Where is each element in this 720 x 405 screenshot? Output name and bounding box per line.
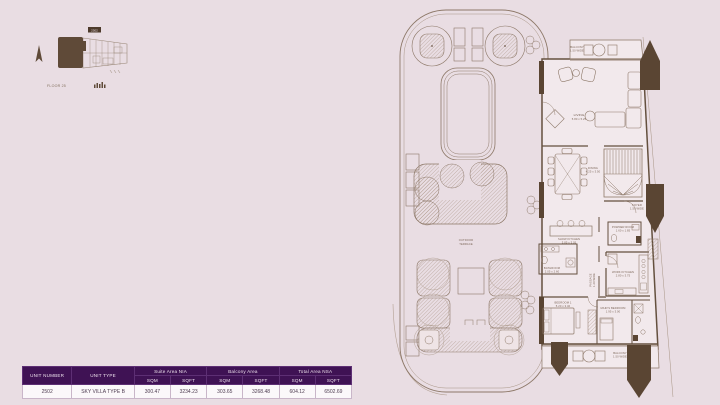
passage-label-group: PASSAGE 1.20 WIDE [589, 273, 597, 287]
room-dims-foyer: 1.50 WIDE [630, 206, 644, 210]
room-dims-powder: 1.60 x 1.85 [616, 228, 631, 232]
header-total-sqm: SQM [279, 376, 315, 385]
terrace: OUTDOOR TERRACE [393, 10, 548, 395]
room-dims-show-kitchen: 3.85 x 3.05 [562, 240, 577, 244]
room-label-powder: POWDER ROOM [612, 225, 635, 229]
header-group-total: Total Area NSA [279, 367, 351, 376]
loungers-top [454, 28, 483, 61]
room-label-dining: DINING [588, 166, 598, 170]
cell-suite-sqft: 3234.23 [171, 385, 207, 398]
key-plan: 2502 FLOOR 25 [30, 14, 142, 96]
terrace-label-1: OUTDOOR [459, 238, 473, 242]
cell-suite-sqm: 300.47 [134, 385, 170, 398]
cell-balcony-sqm: 303.65 [207, 385, 243, 398]
room-dims-balcony-bottom: 1.50 WIDE [613, 354, 627, 358]
column-top-right [640, 40, 660, 90]
floor-label: FLOOR 25 [47, 84, 66, 88]
header-suite-sqft: SQFT [171, 376, 207, 385]
area-table-body: 2502 SKY VILLA TYPE B 300.47 3234.23 303… [23, 385, 352, 398]
cell-balcony-sqft: 3268.48 [243, 385, 279, 398]
key-plan-building-outline [83, 38, 127, 73]
shaft [648, 239, 658, 259]
spa-left [412, 26, 452, 66]
unit-number-chip-label: 2502 [91, 28, 98, 32]
room-label-bathroom: BATHROOM [544, 266, 561, 270]
floor-plan: OUTDOOR TERRACE [392, 4, 684, 400]
room-dims-living: 5.80 x 5.25 [572, 117, 587, 121]
vanity [633, 335, 638, 341]
header-suite-sqm: SQM [134, 376, 170, 385]
room-dims-maids: 1.95 x 3.00 [606, 309, 621, 313]
room-label-foyer: FOYER [632, 203, 642, 207]
pool [441, 68, 495, 160]
header-balcony-sqft: SQFT [243, 376, 279, 385]
room-label-work-kitchen: WORK KITCHEN [612, 270, 634, 274]
column-bottom-left [551, 342, 568, 376]
header-balcony-sqm: SQM [207, 376, 243, 385]
room-label-balcony-bottom: BALCONY [613, 351, 627, 355]
header-total-sqft: SQFT [315, 376, 351, 385]
balcony-top: BALCONY 1.50 WIDE [570, 40, 643, 60]
column-bottom-right [627, 345, 651, 398]
seating-bottom [414, 258, 524, 355]
header-unit-type: UNIT TYPE [72, 367, 135, 385]
room-label-passage: PASSAGE [589, 273, 593, 286]
terrace-label-2: TERRACE [459, 242, 473, 246]
header-group-suite: Suite Area NIA [134, 367, 206, 376]
room-dims-work-kitchen: 2.80 x 3.75 [616, 273, 631, 277]
key-plan-unit-notch [82, 41, 86, 51]
spa-right [485, 26, 525, 66]
room-dims-bathroom: 2.05 x 2.60 [545, 269, 560, 273]
wardrobe [588, 310, 596, 334]
interior-unit: BALCONY 1.50 WIDE LIVING 5.80 x 5.25 [539, 37, 673, 398]
room-label-balcony-top: BALCONY [570, 45, 584, 49]
area-table: UNIT NUMBER UNIT TYPE Suite Area NIA Bal… [22, 366, 352, 399]
header-group-balcony: Balcony Area [207, 367, 279, 376]
header-row-groups: UNIT NUMBER UNIT TYPE Suite Area NIA Bal… [23, 367, 352, 376]
key-plan-unit-highlight [58, 37, 83, 68]
planter-mid [414, 160, 507, 225]
room-label-living: LIVING [574, 113, 585, 117]
shrubs [521, 36, 541, 314]
room-label-maids: MAID'S BEDROOM [600, 306, 626, 310]
cell-total-sqm: 604.12 [279, 385, 315, 398]
room-label-show-kitchen: SHOW KITCHEN [558, 237, 580, 241]
room-label-bedroom-1: BEDROOM 1 [554, 301, 571, 305]
room-dims-bedroom-1: 5.20 x 3.40 [556, 304, 571, 308]
cell-total-sqft: 6502.69 [315, 385, 351, 398]
room-dims-dining: 4.25 x 3.50 [586, 169, 601, 173]
area-table-head: UNIT NUMBER UNIT TYPE Suite Area NIA Bal… [23, 367, 352, 385]
cell-unit-number: 2502 [23, 385, 72, 398]
skyline-icon [94, 82, 106, 88]
room-dims-passage: 1.20 WIDE [592, 273, 596, 287]
vanity [636, 236, 641, 243]
room-dims-balcony-top: 1.50 WIDE [570, 48, 584, 52]
north-arrow-icon [36, 45, 43, 62]
cell-unit-type: SKY VILLA TYPE B [72, 385, 135, 398]
header-unit-number: UNIT NUMBER [23, 367, 72, 385]
page: 2502 FLOOR 25 [0, 0, 720, 405]
table-row: 2502 SKY VILLA TYPE B 300.47 3234.23 303… [23, 385, 352, 398]
